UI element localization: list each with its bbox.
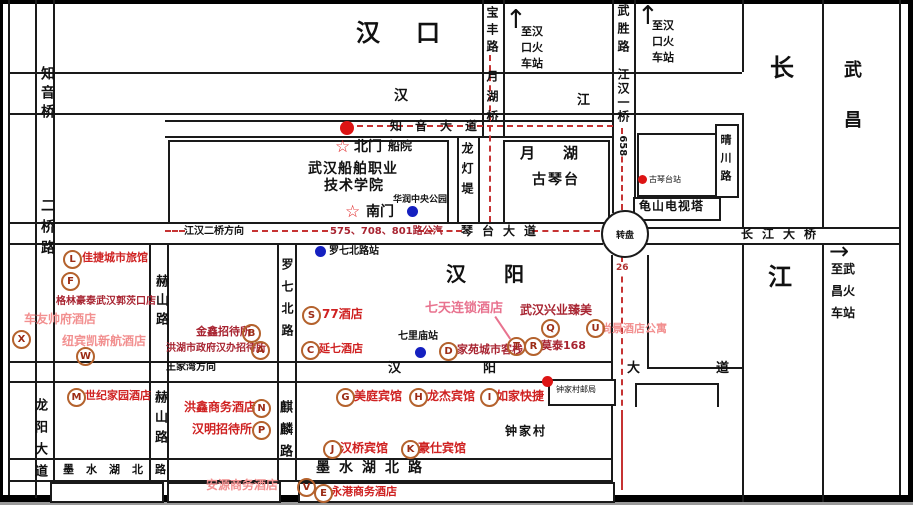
river-bank-line	[822, 0, 824, 227]
hotel-marker-X: X	[12, 330, 31, 349]
road-label-qingchuan-road: 晴川路	[717, 134, 733, 188]
road-label-hanyang-avenue-char: 大	[627, 362, 640, 377]
landmark-tv-tower: 龟山电视塔	[639, 200, 704, 214]
roundabout-label: 转盘	[616, 228, 634, 241]
bus-stop-label-guqintai: 古琴台站	[649, 175, 681, 184]
road-line	[165, 136, 613, 138]
road-label-erqiao-road: 二桥路	[37, 198, 57, 261]
hotel-marker-U: U	[586, 319, 605, 338]
landmark-huarun-park: 华润中央公园	[393, 195, 447, 205]
road-label-jianghan-1st-bridge: 江汉一桥	[615, 68, 632, 124]
road-line	[717, 383, 719, 407]
bus-stop-dot-zhiyin	[340, 121, 354, 135]
hotel-name-S: 77酒店	[322, 308, 363, 322]
road-label-qintai-avenue: 琴台大道	[461, 225, 545, 239]
district-label-wuchang: 武昌	[838, 60, 864, 160]
park-dot	[407, 206, 418, 217]
hotel-name-Q: 武汉兴业臻美	[520, 304, 592, 318]
hotel-name-K: 豪仕宾馆	[418, 442, 466, 456]
road-line	[647, 255, 649, 367]
school-south-gate: 南门	[366, 204, 394, 220]
direction-jianghan-2nd-bridge: 江汉二桥方向	[184, 226, 244, 238]
bus-stop-label-qilimiao: 七里庙站	[398, 331, 438, 343]
direction-to-wuchang-station: 至武 昌火 车站	[831, 258, 855, 324]
frame-top	[0, 0, 913, 4]
bus-route-dashed	[252, 230, 328, 232]
hotel-marker-L: L	[63, 250, 82, 269]
hotel-marker-J: J	[323, 440, 342, 459]
road-label-longdeng-di: 龙灯堤	[459, 142, 476, 202]
river-label-hanjiang-han: 汉	[394, 88, 408, 104]
road-label-zhiyin-avenue: 知音大道	[390, 120, 490, 134]
hotel-marker-W: W	[76, 347, 95, 366]
hotel-marker-R: R	[524, 337, 543, 356]
road-line	[635, 383, 637, 407]
bus-route-label-qintai: 575、708、801路公汽	[330, 226, 443, 238]
district-label-hankou: 汉口	[356, 20, 476, 48]
bus-stop-dot-guqintai	[638, 175, 647, 184]
bus-stop-dot-qilimiao	[415, 347, 426, 358]
road-label-longyang-avenue: 龙阳大道	[30, 398, 49, 486]
hotel-name-U: 尚景酒店公寓	[601, 323, 667, 336]
landmark-zhongjiacun: 钟家村	[505, 425, 547, 439]
hotel-name-N: 洪鑫商务酒店	[184, 401, 256, 415]
school-name-line1: 武汉船舶职业	[308, 161, 398, 177]
frame-right-outer	[908, 0, 913, 505]
frame-right-inner	[899, 0, 901, 500]
hotel-name-F: 格林豪泰武汉郭茨口店	[56, 296, 156, 308]
hotel-name-G: 美庭宾馆	[354, 390, 402, 404]
river-bank-line	[822, 243, 824, 502]
hotel-name-W: 纽宾凯新航酒店	[62, 335, 146, 349]
road-label-hanyang-avenue-char: 汉	[388, 362, 401, 377]
school-north-gate: 北门	[354, 139, 382, 155]
hotel-name-J: 汉桥宾馆	[340, 442, 388, 456]
road-label-moshuihu-mid: 墨水湖北路	[316, 460, 431, 476]
hotel-marker-K: K	[401, 440, 420, 459]
bus-route-dashed	[621, 256, 623, 416]
river-bank-line	[742, 113, 744, 227]
road-label-changjiang-bridge: 长江大桥	[741, 228, 825, 242]
hotel-marker-G: G	[336, 388, 355, 407]
river-label-hanjiang-jiang: 江	[577, 94, 590, 109]
direction-wangjiawan: 王家湾方向	[166, 362, 216, 374]
road-label-baofeng-road: 宝丰路	[484, 6, 501, 57]
river-label-changjiang-top: 长	[770, 55, 794, 83]
hotel-name-M: 世纪家园酒店	[85, 390, 151, 403]
road-label-hanyang-avenue-char: 道	[716, 362, 729, 377]
hotel-marker-C: C	[301, 341, 320, 360]
district-label-hanyang: 汉阳	[446, 263, 562, 286]
school-academy-short: 船院	[388, 140, 412, 154]
hotel-name-I: 如家快捷	[496, 390, 544, 404]
landmark-guqintai: 古琴台	[532, 172, 580, 188]
road-line	[635, 383, 717, 385]
road-label-luoqibei-road: 罗七北路	[279, 258, 296, 346]
hotel-name-H: 龙杰宾馆	[427, 390, 475, 404]
hotel-marker-Q: Q	[541, 319, 560, 338]
hotel-marker-P: P	[252, 421, 271, 440]
hotel-name-L: 佳捷城市旅馆	[82, 252, 148, 265]
road-line	[478, 137, 480, 222]
right-arrow-icon: →	[829, 238, 849, 266]
river-bank-line	[742, 0, 744, 72]
road-label-hanyang-avenue-char: 阳	[483, 362, 496, 377]
hotel-marker-H: H	[409, 388, 428, 407]
road-line	[8, 381, 611, 383]
road-line	[8, 361, 611, 363]
hotel-name-C: 延七酒店	[319, 343, 363, 356]
bus-stop-label-luoqibei: 罗七北路站	[329, 246, 379, 258]
roundabout: 转盘	[601, 210, 649, 258]
up-arrow-icon: ↑	[637, 2, 659, 32]
hotel-marker-E: E	[314, 484, 333, 503]
road-label-zhiyin-bridge: 知音桥	[37, 66, 57, 123]
hotel-marker-M: M	[67, 388, 86, 407]
river-label-changjiang-bottom: 江	[768, 264, 792, 292]
landmark-post-office: 钟家村邮局	[556, 385, 596, 394]
hotel-pointer-line	[494, 316, 511, 340]
school-name-line2: 技术学院	[324, 178, 384, 194]
south-block	[50, 482, 164, 503]
road-line	[165, 120, 613, 122]
post-office-dot	[542, 376, 553, 387]
road-label-moshuihu-left: 墨水湖北路	[63, 464, 178, 477]
gate-star-icon: ☆	[335, 139, 350, 156]
bus-number-26: 26	[615, 263, 630, 273]
guqintai-station-block	[637, 133, 717, 197]
road-label-heshan-road-lower: 赫山路	[150, 390, 169, 450]
bus-stop-dot-luoqibei	[315, 246, 326, 257]
road-line	[634, 0, 636, 213]
hotel-name-R: 莫泰168	[541, 340, 586, 353]
up-arrow-icon: ↑	[505, 6, 527, 36]
frame-left-inner	[8, 0, 10, 498]
road-line	[8, 243, 603, 245]
road-line	[646, 243, 899, 245]
wuhan-hotel-sketch-map: 转盘 汉口 汉阳 武昌 长 江 汉 江 知音桥 二桥路 龙阳大道 赫山路 赫山路…	[0, 0, 913, 505]
frame-left-outer	[0, 0, 3, 505]
bus-route-solid	[621, 416, 623, 490]
gate-star-icon: ☆	[345, 204, 360, 221]
hotel-name-E: 永港商务酒店	[331, 486, 397, 499]
landmark-yuehu: 月湖	[520, 145, 606, 162]
road-label-wusheng-road: 武胜路	[615, 4, 632, 58]
bus-route-dashed	[165, 230, 185, 232]
bus-number-658: 658	[617, 135, 629, 156]
road-line	[8, 458, 611, 460]
hotel-marker-I: I	[480, 388, 499, 407]
hotel-name-P: 汉明招待所	[192, 423, 252, 437]
road-label-qilin-road: 麒麟路	[275, 400, 294, 466]
hotel-marker-A: A	[251, 341, 270, 360]
hotel-marker-F: F	[61, 272, 80, 291]
river-bank-line	[742, 243, 744, 502]
hotel-marker-D: D	[439, 342, 458, 361]
hotel-name-V: 安源商务酒店	[206, 479, 278, 493]
hotel-name-X: 车友帅府酒店	[24, 313, 96, 327]
hotel-name-T: 七天连锁酒店	[425, 302, 503, 317]
road-line	[612, 0, 614, 213]
hotel-marker-N: N	[252, 399, 271, 418]
hotel-marker-S: S	[302, 306, 321, 325]
